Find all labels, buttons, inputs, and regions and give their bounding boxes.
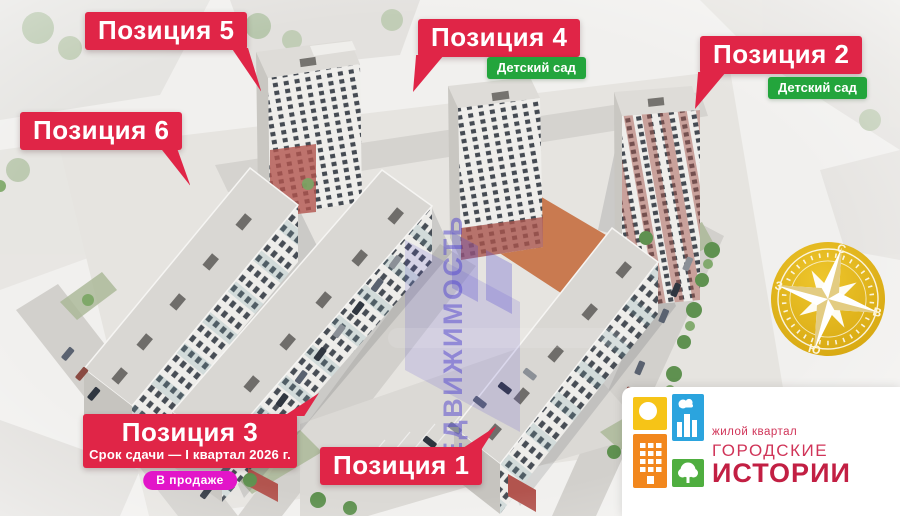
building-tile-icon	[633, 434, 667, 488]
tree-tile-icon	[672, 459, 704, 487]
label-position-6-text: Позиция 6	[33, 115, 169, 145]
label-position-5[interactable]: Позиция 5	[85, 12, 247, 50]
developer-logo: жилой квартал ГОРОДСКИЕ ИСТОРИИ	[622, 387, 900, 516]
label-position-5-text: Позиция 5	[98, 15, 234, 45]
label-position-6[interactable]: Позиция 6	[20, 112, 182, 150]
label-position-4[interactable]: Позиция 4	[418, 19, 580, 57]
label-position-3[interactable]: Позиция 3 Срок сдачи — I квартал 2026 г.…	[83, 414, 297, 468]
kindergarten-badge-pos4: Детский сад	[487, 57, 586, 79]
logo-tagline: жилой квартал	[712, 427, 851, 439]
label-position-3-text: Позиция 3	[89, 419, 291, 445]
sun-tile-icon	[633, 397, 667, 430]
label-position-2-text: Позиция 2	[713, 39, 849, 69]
label-position-4-text: Позиция 4	[431, 22, 567, 52]
label-position-1[interactable]: Позиция 1	[320, 447, 482, 485]
kindergarten-badge-pos2: Детский сад	[768, 77, 867, 99]
label-position-3-subtitle: Срок сдачи — I квартал 2026 г.	[89, 448, 291, 461]
label-position-1-text: Позиция 1	[333, 450, 469, 480]
label-position-2[interactable]: Позиция 2	[700, 36, 862, 74]
on-sale-badge: В продаже	[143, 471, 237, 490]
genplan-view: НЕДВИЖИМОСТЬ Позиция 5 Позиция 4 Детский…	[0, 0, 900, 516]
city-tile-icon	[672, 394, 704, 441]
logo-name-line1: ГОРОДСКИЕ	[712, 442, 851, 459]
logo-name-line2: ИСТОРИИ	[712, 460, 851, 487]
logo-text-block: жилой квартал ГОРОДСКИЕ ИСТОРИИ	[712, 427, 851, 487]
compass-rose-icon: С В Ю З	[765, 236, 891, 362]
